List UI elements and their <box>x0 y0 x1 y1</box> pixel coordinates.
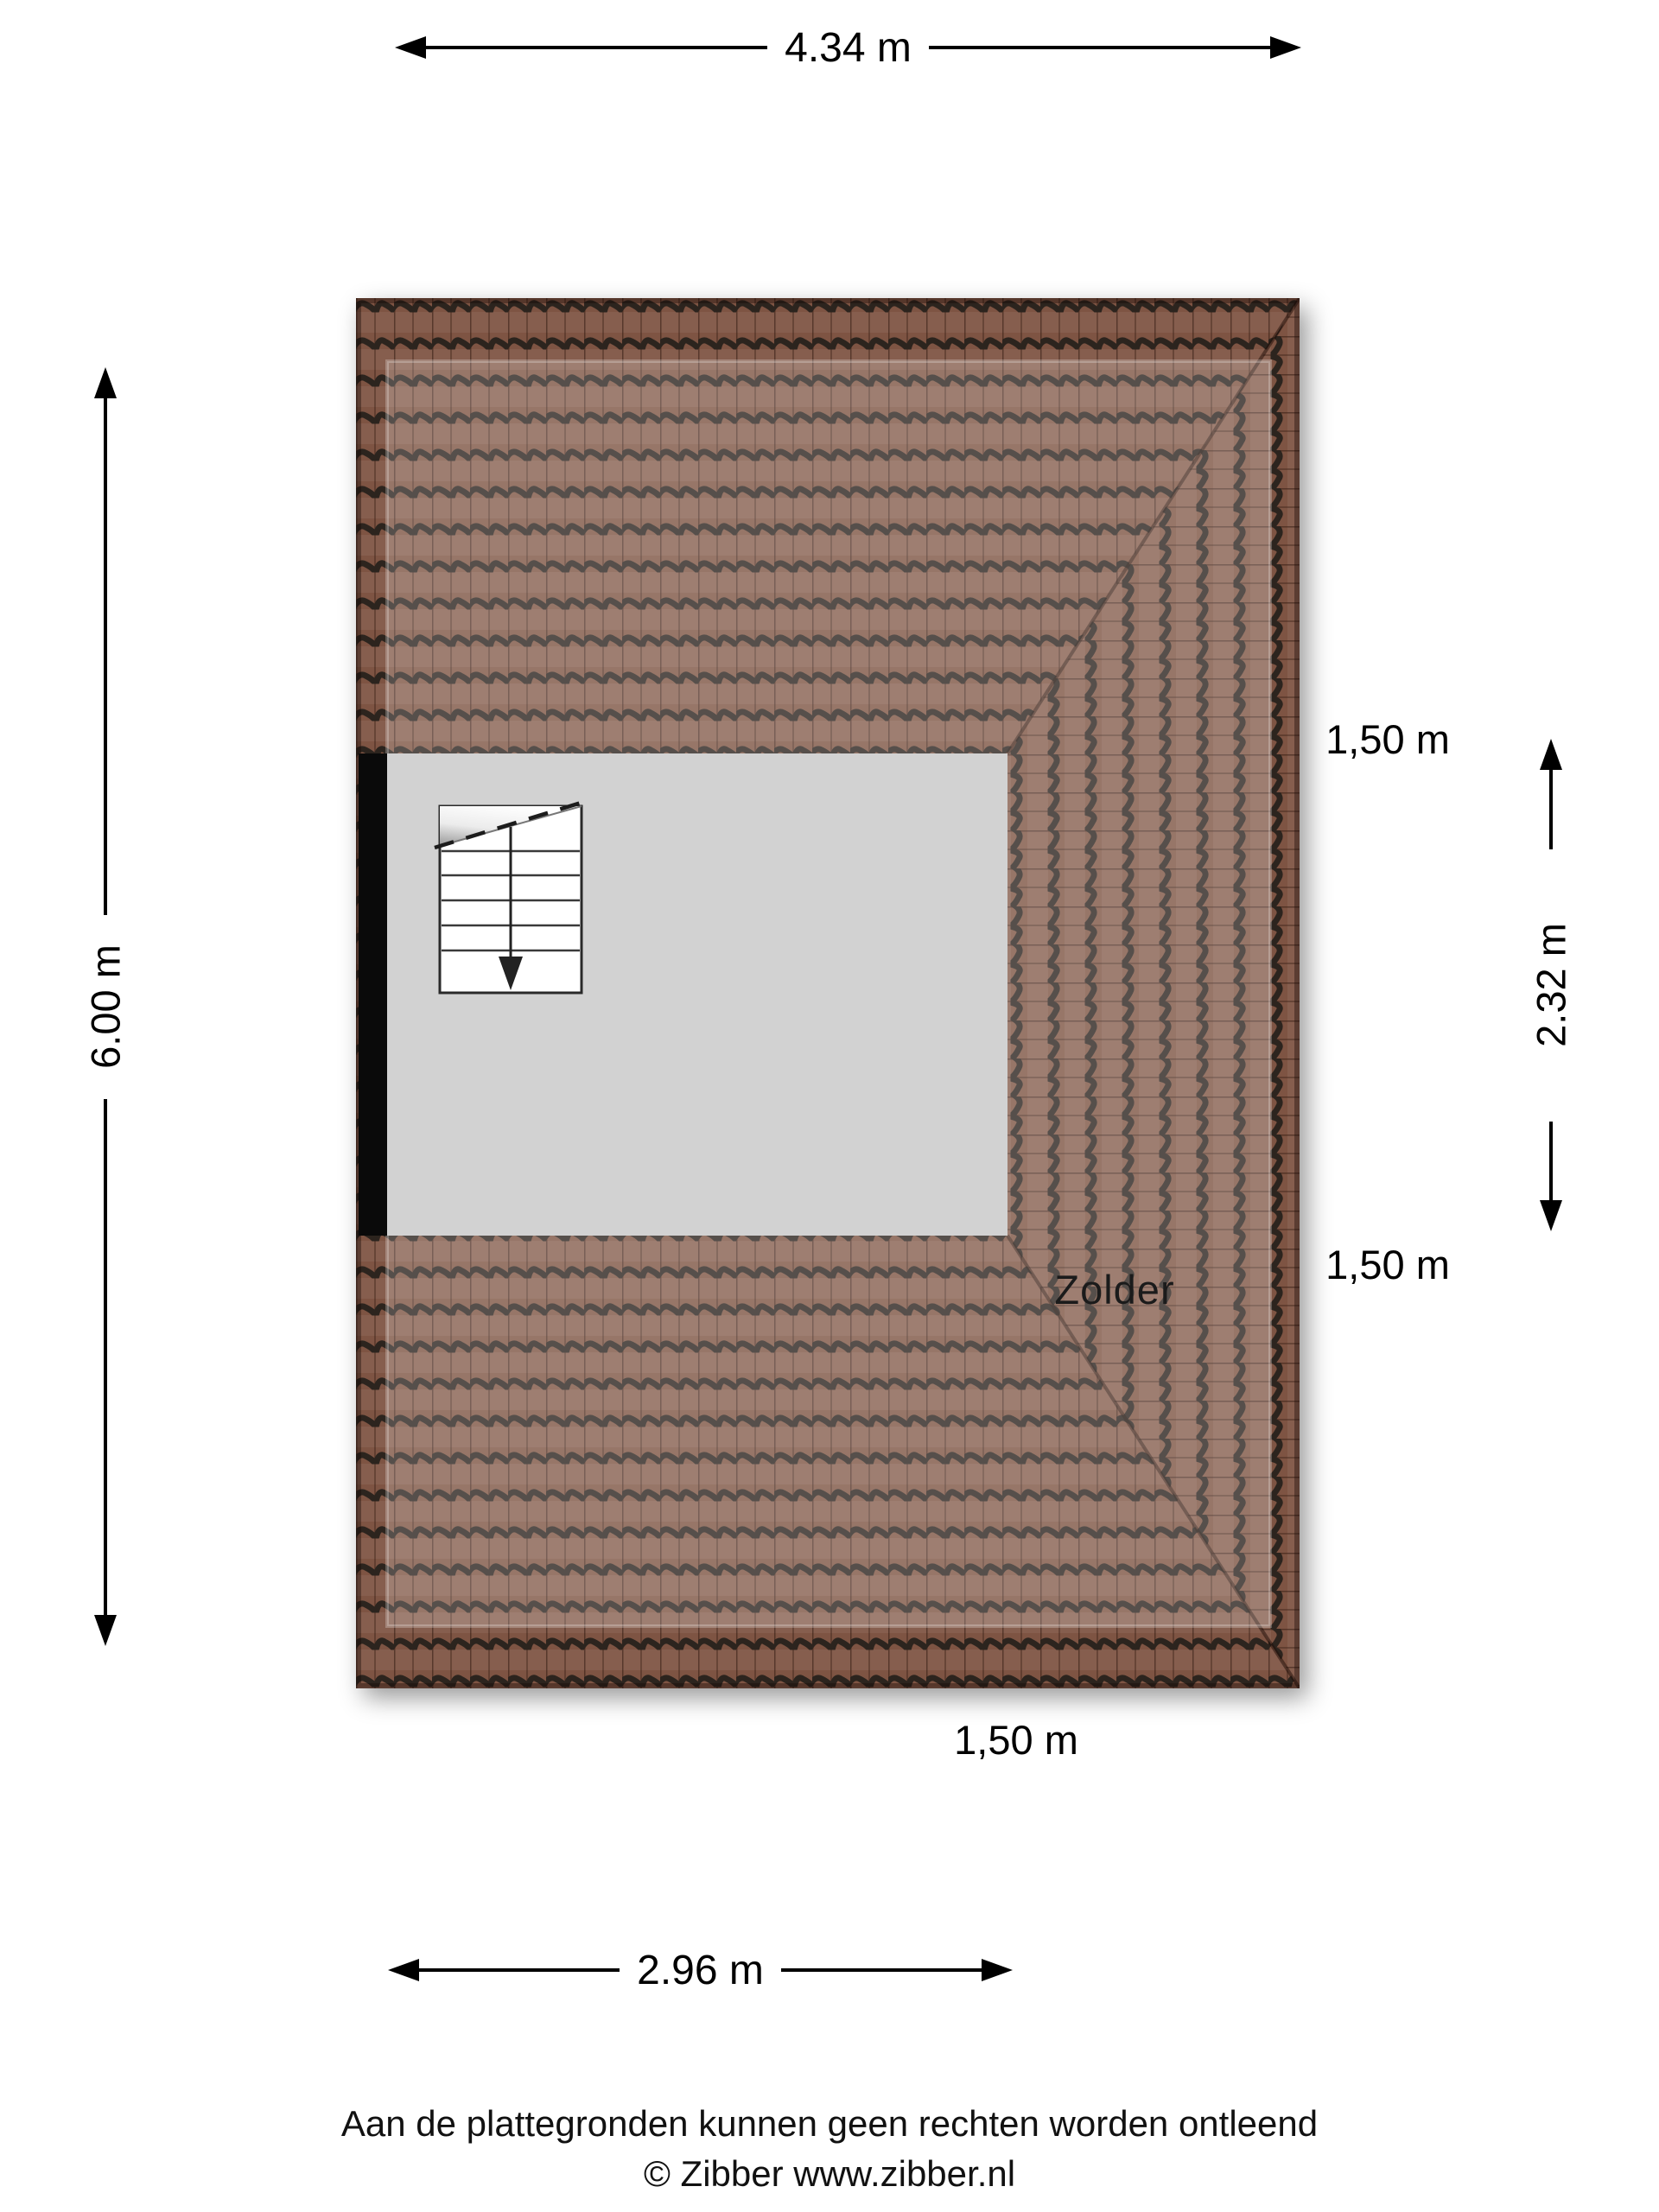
dimension-right-middle-label: 2.32 m <box>1528 923 1575 1047</box>
dimension-top-label: 4.34 m <box>767 24 929 72</box>
dimension-right-middle: 2.32 m <box>1532 739 1570 1231</box>
arrowhead-left-icon <box>388 1959 419 1981</box>
room-wall <box>359 753 387 1236</box>
dimension-line <box>781 1968 982 1972</box>
footer-copyright: © Zibber www.zibber.nl <box>0 2153 1659 2195</box>
dimension-line <box>1549 1122 1553 1201</box>
arrowhead-right-icon <box>982 1959 1013 1981</box>
arrowhead-right-icon <box>1270 36 1301 59</box>
dimension-left: 6.00 m <box>86 367 124 1646</box>
arrowhead-down-icon <box>1540 1200 1562 1231</box>
dimension-right-label-box: 2.32 m <box>1532 849 1570 1122</box>
dimension-right-bottom-label: 1,50 m <box>1310 1241 1465 1288</box>
arrowhead-up-icon <box>1540 739 1562 770</box>
dimension-line <box>104 1099 107 1616</box>
dimension-line <box>104 398 107 915</box>
arrowhead-down-icon <box>94 1615 117 1646</box>
dimension-left-label-box: 6.00 m <box>86 915 124 1099</box>
room-label-zolder: Zolder <box>1028 1266 1201 1313</box>
dimension-bottom: 2.96 m <box>388 1929 1013 2011</box>
dimension-top: 4.34 m <box>395 7 1301 88</box>
floor-plan: Zolder <box>356 298 1300 1688</box>
dimension-line <box>1549 770 1553 849</box>
dimension-bottom-inner-label: 1,50 m <box>930 1716 1103 1764</box>
arrowhead-up-icon <box>94 367 117 398</box>
staircase-icon <box>435 801 587 993</box>
floor-plan-canvas <box>356 298 1300 1688</box>
dimension-bottom-label: 2.96 m <box>620 1947 781 1994</box>
dimension-line <box>929 46 1270 49</box>
dimension-line <box>426 46 767 49</box>
dimension-right-top-label: 1,50 m <box>1310 715 1465 763</box>
dimension-left-label: 6.00 m <box>82 944 130 1069</box>
dimension-line <box>419 1968 620 1972</box>
arrowhead-left-icon <box>395 36 426 59</box>
floorplan-page: 4.34 m 6.00 m 2.32 m 1,50 m 1,50 m 1,50 … <box>0 0 1659 2212</box>
footer-disclaimer: Aan de plattegronden kunnen geen rechten… <box>0 2103 1659 2145</box>
